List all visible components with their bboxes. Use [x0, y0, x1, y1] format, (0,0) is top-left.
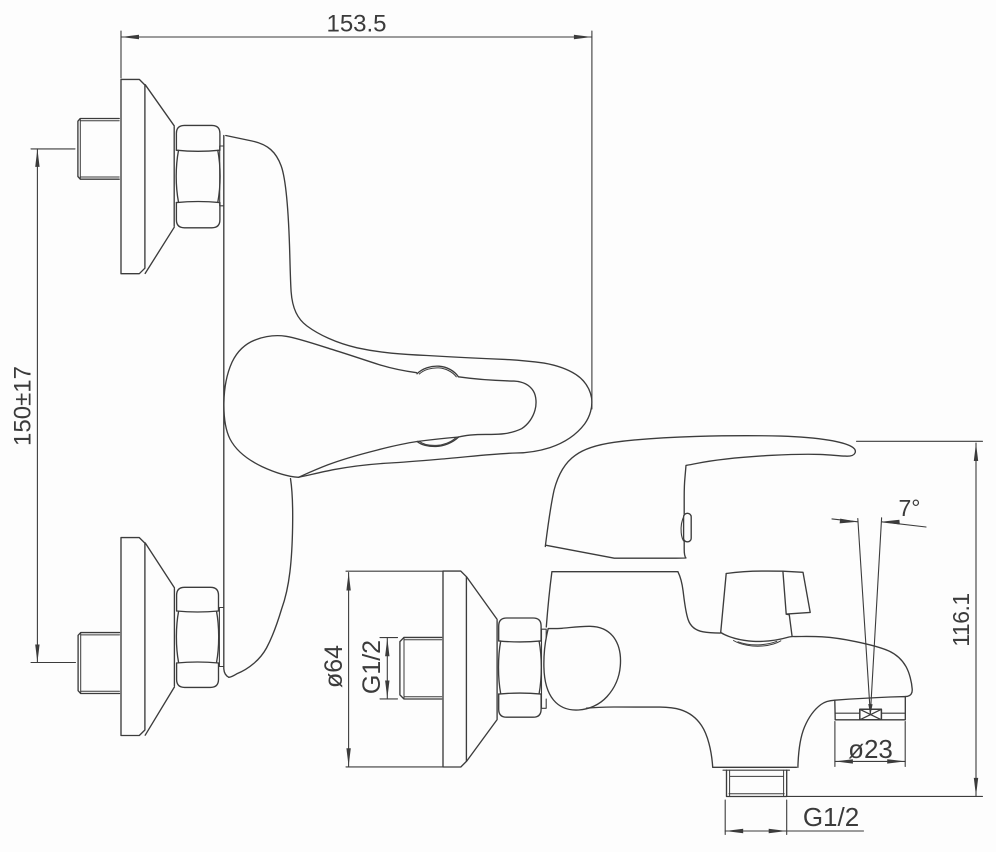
svg-text:ø64: ø64 [320, 645, 348, 688]
svg-text:150±17: 150±17 [10, 366, 37, 446]
svg-text:7°: 7° [899, 495, 921, 521]
svg-text:116.1: 116.1 [948, 593, 974, 646]
svg-text:G1/2: G1/2 [358, 640, 386, 694]
svg-text:G1/2: G1/2 [803, 802, 859, 832]
svg-text:ø23: ø23 [848, 734, 893, 764]
svg-text:153.5: 153.5 [326, 11, 386, 38]
